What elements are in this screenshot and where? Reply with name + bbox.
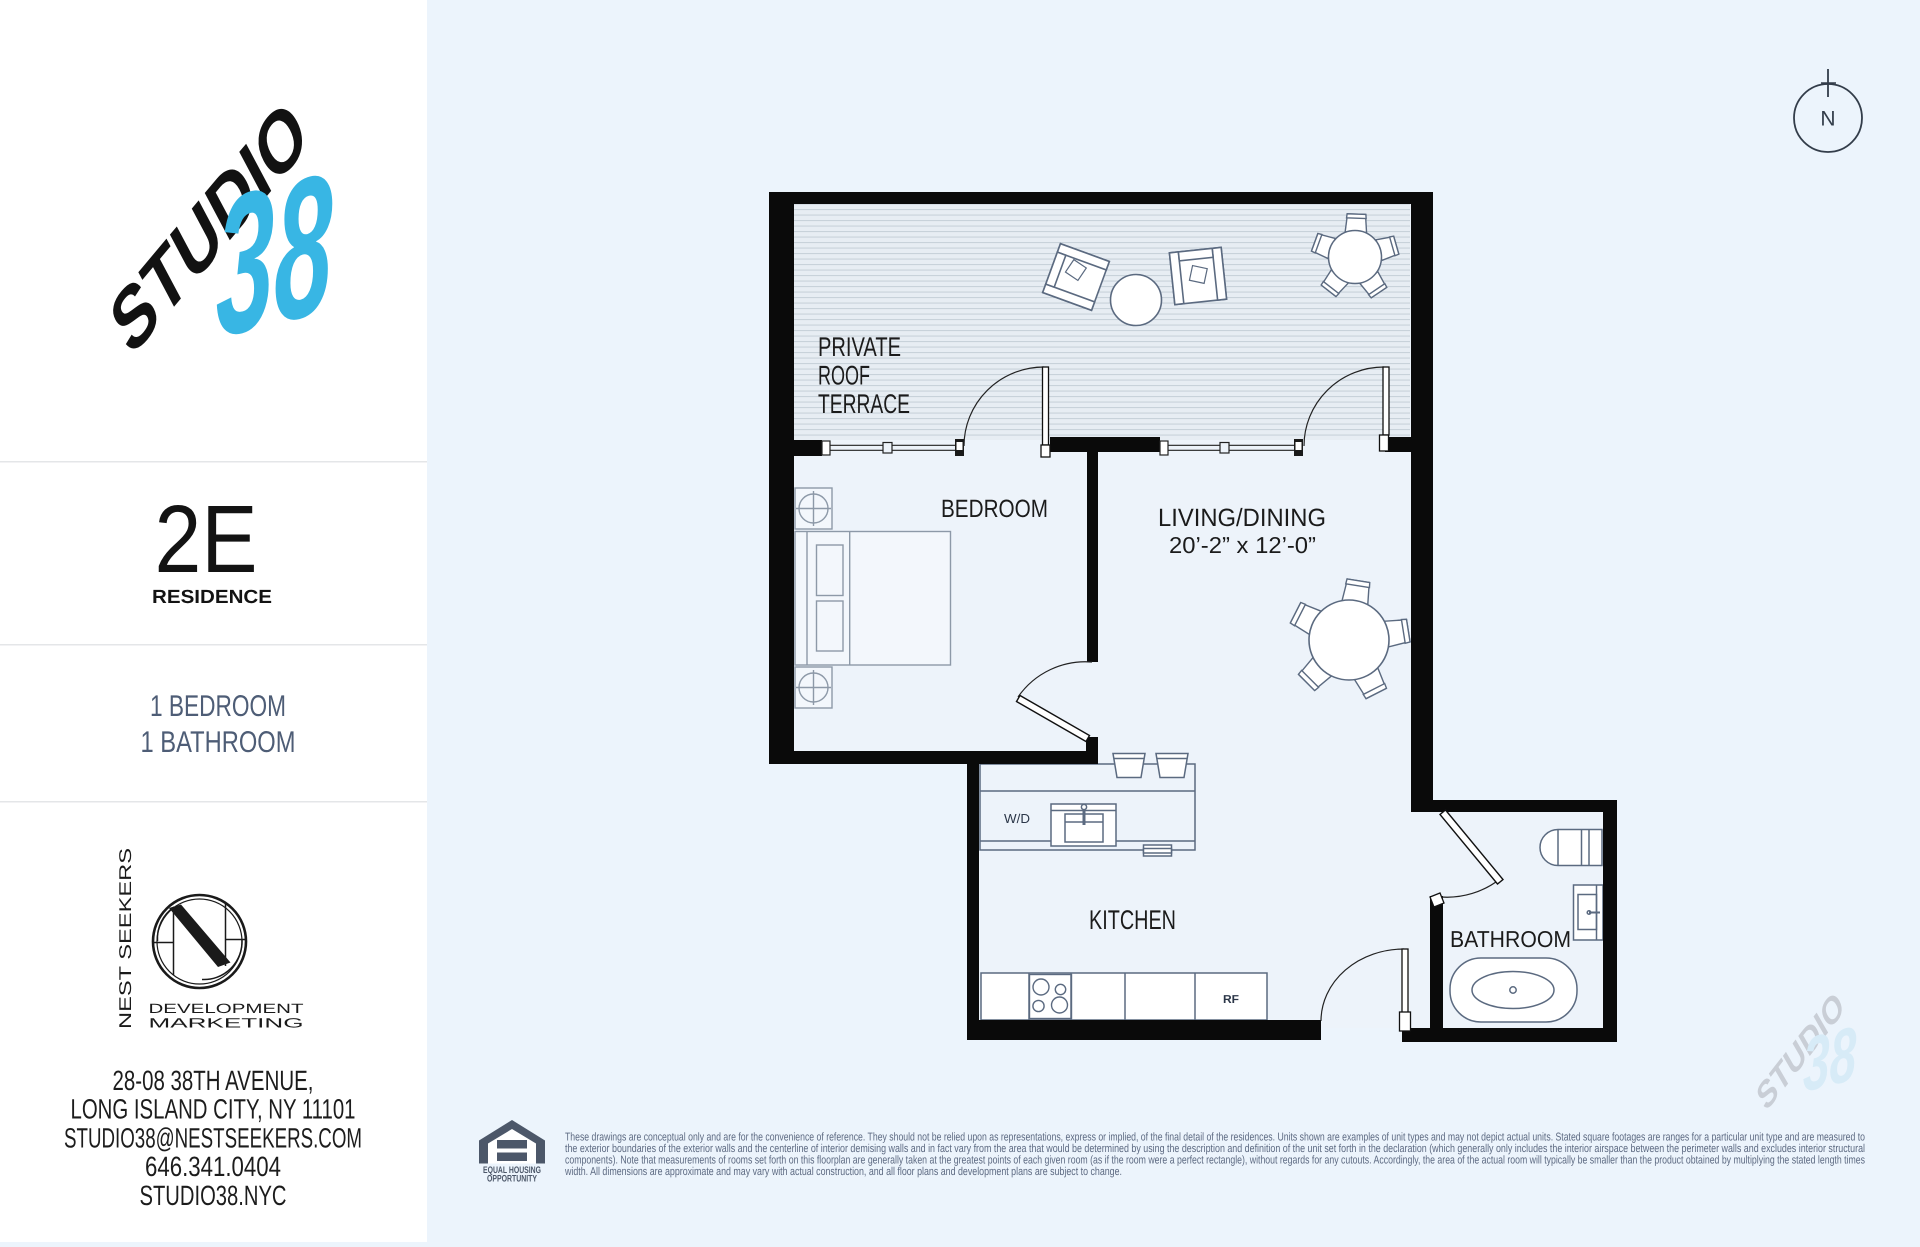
svg-text:N: N <box>1820 108 1835 131</box>
svg-text:KITCHEN: KITCHEN <box>1089 905 1176 935</box>
svg-text:width. All dimensions are appr: width. All dimensions are approximate an… <box>564 1166 1122 1178</box>
svg-text:STUDIO38.NYC: STUDIO38.NYC <box>140 1180 287 1211</box>
svg-text:BATHROOM: BATHROOM <box>1450 926 1571 952</box>
svg-text:RESIDENCE: RESIDENCE <box>152 587 272 608</box>
svg-text:LONG ISLAND CITY, NY 11101: LONG ISLAND CITY, NY 11101 <box>71 1094 356 1125</box>
svg-text:BEDROOM: BEDROOM <box>941 495 1048 523</box>
svg-text:646.341.0404: 646.341.0404 <box>145 1151 281 1182</box>
svg-text:TERRACE: TERRACE <box>818 389 910 419</box>
svg-text:1 BEDROOM: 1 BEDROOM <box>150 690 286 723</box>
svg-text:2E: 2E <box>155 486 258 593</box>
svg-text:38: 38 <box>1803 1010 1857 1109</box>
svg-text:components). Note that measure: components). Note that measurements of r… <box>565 1155 1865 1167</box>
svg-text:These drawings are conceptual: These drawings are conceptual only and a… <box>565 1132 1865 1144</box>
svg-text:1 BATHROOM: 1 BATHROOM <box>141 726 296 759</box>
svg-text:OPPORTUNITY: OPPORTUNITY <box>487 1174 537 1185</box>
svg-text:20’-2” x 12’-0”: 20’-2” x 12’-0” <box>1169 532 1316 558</box>
svg-text:ROOF: ROOF <box>818 361 870 391</box>
svg-text:RF: RF <box>1223 994 1239 1006</box>
svg-text:28-08 38TH AVENUE,: 28-08 38TH AVENUE, <box>113 1065 314 1096</box>
svg-text:LIVING/DINING: LIVING/DINING <box>1158 504 1326 532</box>
svg-text:MARKETING: MARKETING <box>149 1016 304 1031</box>
svg-text:38: 38 <box>216 130 333 381</box>
svg-text:W/D: W/D <box>1004 811 1030 826</box>
svg-text:STUDIO38@NESTSEEKERS.COM: STUDIO38@NESTSEEKERS.COM <box>64 1122 362 1153</box>
svg-text:DEVELOPMENT: DEVELOPMENT <box>149 1001 304 1016</box>
svg-text:NEST SEEKERS: NEST SEEKERS <box>116 848 135 1029</box>
svg-text:PRIVATE: PRIVATE <box>818 332 901 362</box>
svg-text:the exterior boundaries of the: the exterior boundaries of the exterior … <box>565 1143 1865 1155</box>
